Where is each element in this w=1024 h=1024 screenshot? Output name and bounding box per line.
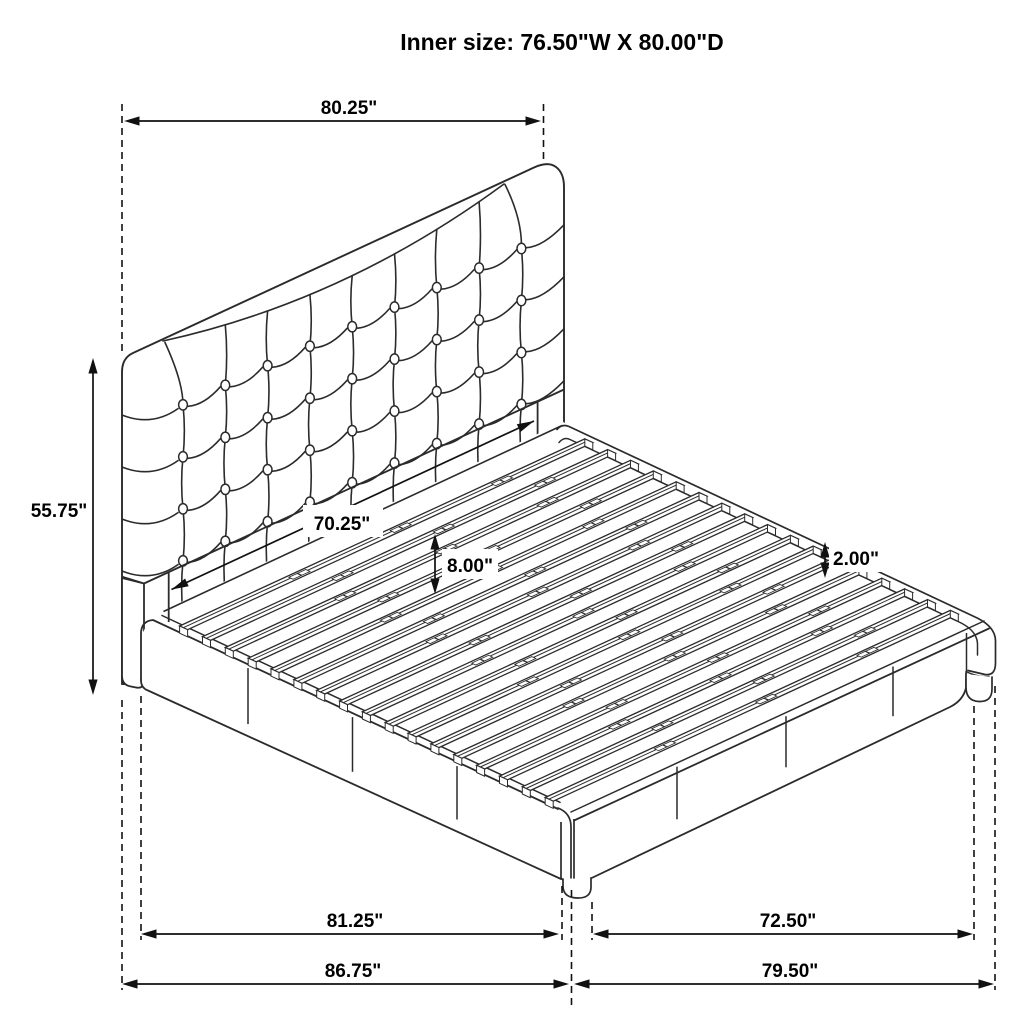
svg-text:2.00": 2.00": [833, 549, 879, 570]
svg-text:80.25": 80.25": [321, 98, 378, 119]
svg-text:86.75": 86.75": [325, 961, 382, 982]
svg-text:Inner size: 76.50"W X 80.00"D: Inner size: 76.50"W X 80.00"D: [400, 29, 724, 55]
svg-text:55.75": 55.75": [31, 501, 88, 522]
svg-text:72.50": 72.50": [760, 911, 817, 932]
svg-text:81.25": 81.25": [327, 911, 384, 932]
svg-text:8.00": 8.00": [447, 556, 493, 577]
svg-text:79.50": 79.50": [762, 961, 819, 982]
svg-text:70.25": 70.25": [314, 514, 371, 535]
